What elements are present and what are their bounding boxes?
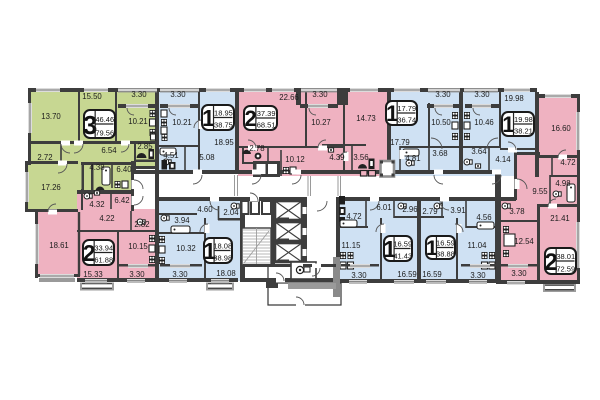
svg-text:16.59: 16.59 <box>397 270 417 279</box>
svg-text:6.42: 6.42 <box>114 196 129 205</box>
svg-text:4.39: 4.39 <box>329 153 344 162</box>
svg-text:41.43: 41.43 <box>393 251 412 260</box>
svg-text:11.15: 11.15 <box>342 241 362 250</box>
svg-text:3.30: 3.30 <box>511 269 527 278</box>
svg-text:4.60: 4.60 <box>197 205 213 214</box>
svg-text:72.59: 72.59 <box>556 264 575 273</box>
svg-text:17.79: 17.79 <box>390 138 410 147</box>
svg-text:10.32: 10.32 <box>176 244 196 253</box>
svg-text:15.50: 15.50 <box>82 92 102 101</box>
svg-text:3.64: 3.64 <box>471 147 487 156</box>
svg-text:18.61: 18.61 <box>49 241 69 250</box>
svg-text:4.38: 4.38 <box>89 163 104 172</box>
svg-text:3.30: 3.30 <box>312 90 328 99</box>
svg-text:79.56: 79.56 <box>95 128 114 137</box>
svg-text:21.41: 21.41 <box>550 214 570 223</box>
svg-text:3.30: 3.30 <box>170 90 186 99</box>
svg-text:10.50: 10.50 <box>431 118 451 127</box>
svg-text:18.08: 18.08 <box>216 269 236 278</box>
svg-text:38.21: 38.21 <box>514 126 533 135</box>
svg-text:10.12: 10.12 <box>285 155 305 164</box>
svg-text:13.70: 13.70 <box>41 112 61 121</box>
svg-text:16.59: 16.59 <box>422 270 442 279</box>
svg-text:36.74: 36.74 <box>397 115 416 124</box>
svg-text:4.14: 4.14 <box>495 155 511 164</box>
svg-text:10.15: 10.15 <box>128 242 148 251</box>
svg-text:5.08: 5.08 <box>199 153 214 162</box>
svg-text:61.88: 61.88 <box>94 255 113 264</box>
svg-text:3.68: 3.68 <box>432 149 447 158</box>
svg-text:1: 1 <box>502 112 514 137</box>
svg-text:4.98: 4.98 <box>555 179 570 188</box>
svg-text:14.73: 14.73 <box>356 114 376 123</box>
svg-text:68.51: 68.51 <box>257 120 276 129</box>
svg-text:2.85: 2.85 <box>137 142 153 151</box>
svg-text:3.30: 3.30 <box>172 270 188 279</box>
svg-text:4.72: 4.72 <box>560 158 575 167</box>
svg-text:2.04: 2.04 <box>223 208 239 217</box>
svg-text:11.04: 11.04 <box>468 241 488 250</box>
svg-text:2.72: 2.72 <box>37 153 52 162</box>
svg-text:10.27: 10.27 <box>311 118 331 127</box>
svg-text:3.30: 3.30 <box>351 271 367 280</box>
svg-text:19.98: 19.98 <box>514 115 533 124</box>
svg-text:38.98: 38.98 <box>213 253 232 262</box>
svg-text:2.79: 2.79 <box>422 207 437 216</box>
svg-text:46.46: 46.46 <box>95 115 114 124</box>
svg-text:22.66: 22.66 <box>279 93 299 102</box>
svg-text:3.30: 3.30 <box>435 90 451 99</box>
svg-text:19.98: 19.98 <box>504 94 524 103</box>
svg-text:3.56: 3.56 <box>353 153 368 162</box>
svg-text:12.54: 12.54 <box>514 237 534 246</box>
svg-text:4.81: 4.81 <box>405 154 420 163</box>
svg-text:2.78: 2.78 <box>249 144 264 153</box>
svg-text:4.22: 4.22 <box>99 214 114 223</box>
svg-text:15.33: 15.33 <box>83 270 103 279</box>
svg-text:3.91: 3.91 <box>450 206 465 215</box>
svg-text:2.96: 2.96 <box>402 205 417 214</box>
svg-text:3.94: 3.94 <box>174 216 190 225</box>
svg-text:16.59: 16.59 <box>393 240 412 249</box>
svg-text:16.60: 16.60 <box>551 124 571 133</box>
svg-text:3.30: 3.30 <box>474 90 490 99</box>
svg-text:4.56: 4.56 <box>476 213 491 222</box>
svg-text:18.95: 18.95 <box>214 138 234 147</box>
svg-text:6.40: 6.40 <box>116 165 132 174</box>
svg-text:3.30: 3.30 <box>129 270 145 279</box>
svg-text:18.08: 18.08 <box>213 242 232 251</box>
svg-text:38.75: 38.75 <box>214 120 233 129</box>
svg-text:4.72: 4.72 <box>346 212 361 221</box>
svg-text:10.21: 10.21 <box>128 117 148 126</box>
svg-text:17.26: 17.26 <box>41 183 61 192</box>
svg-text:37.39: 37.39 <box>257 109 276 118</box>
svg-text:38.01: 38.01 <box>556 252 575 261</box>
svg-text:6.54: 6.54 <box>101 146 117 155</box>
svg-text:9.55: 9.55 <box>532 187 548 196</box>
svg-text:17.79: 17.79 <box>397 104 416 113</box>
svg-text:4.32: 4.32 <box>89 200 104 209</box>
svg-text:38.88: 38.88 <box>436 249 455 258</box>
svg-text:3.30: 3.30 <box>131 90 147 99</box>
svg-text:3.30: 3.30 <box>470 271 486 280</box>
svg-text:16.59: 16.59 <box>436 239 455 248</box>
svg-text:33.94: 33.94 <box>94 244 113 253</box>
svg-text:6.01: 6.01 <box>376 203 391 212</box>
svg-text:2: 2 <box>244 106 256 131</box>
svg-text:10.21: 10.21 <box>172 118 192 127</box>
svg-text:4.51: 4.51 <box>163 151 178 160</box>
svg-text:18.95: 18.95 <box>214 109 233 118</box>
svg-text:3.78: 3.78 <box>509 207 524 216</box>
svg-text:2.82: 2.82 <box>134 220 149 229</box>
svg-text:10.46: 10.46 <box>474 118 494 127</box>
